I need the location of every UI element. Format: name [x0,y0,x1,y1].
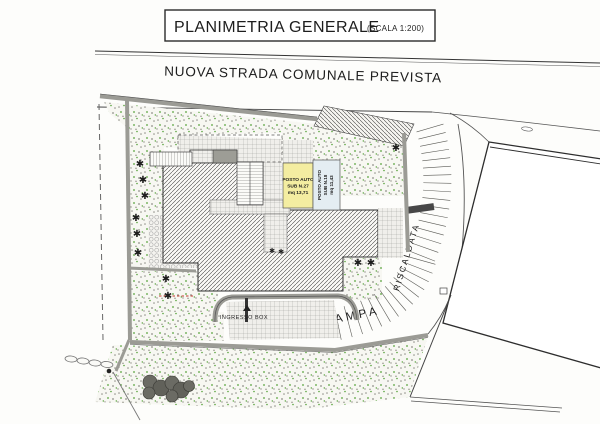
stall27-line2: SUB N.27 [287,184,309,190]
ingresso-box-label: INGRESSO BOX [220,315,268,321]
stall18-line1: POSTO AUTO [317,170,322,200]
tree-icon: ✱ [392,143,400,154]
plan-title: PLANIMETRIA GENERALE [174,19,379,36]
boundary-point [107,369,112,374]
tree-icon: ✱ [133,229,141,240]
tree-icon: ✱ [354,258,362,269]
stall27-line3: mq 13,71 [288,190,309,196]
courtyard-walk-v [264,214,287,252]
title-block: PLANIMETRIA GENERALE (SCALA 1:200) [165,10,435,41]
parking-stalls: POSTO AUTO SUB N.27 mq 13,71 POSTO AUTO … [282,160,340,210]
plant-icon: ✱ [278,248,284,256]
plant-icon: ✱ [269,247,275,255]
stair-run-top [150,152,192,166]
garden-lower-strip [128,312,224,341]
tree-icon: ✱ [164,291,172,302]
paving-right-of-building [378,208,403,258]
tree-icon: ✱ [141,191,149,202]
tree-icon: ✱ [367,258,375,269]
tree-icon: ✱ [139,175,147,186]
boundary-tick [440,288,447,294]
tree-icon: ✱ [132,213,140,224]
site-plan-page: { "title": { "main": "PLANIMETRIA GENERA… [0,0,600,424]
roof-structure-dark [213,150,237,163]
paving-above-stall [283,140,313,163]
site-plan-drawing: PLANIMETRIA GENERALE (SCALA 1:200) NUOVA… [0,0,600,424]
stall18-line3: mq 11,43 [329,175,334,195]
plan-scale: (SCALA 1:200) [367,24,424,33]
tree-icon: ✱ [162,274,170,285]
tree-icon: ✱ [136,159,144,170]
stall18-line2: SUB N.18 [323,174,328,195]
stall27-line1: POSTO AUTO [282,177,314,183]
tree-icon: ✱ [134,248,142,259]
garden-lower-right-patch [344,258,382,300]
